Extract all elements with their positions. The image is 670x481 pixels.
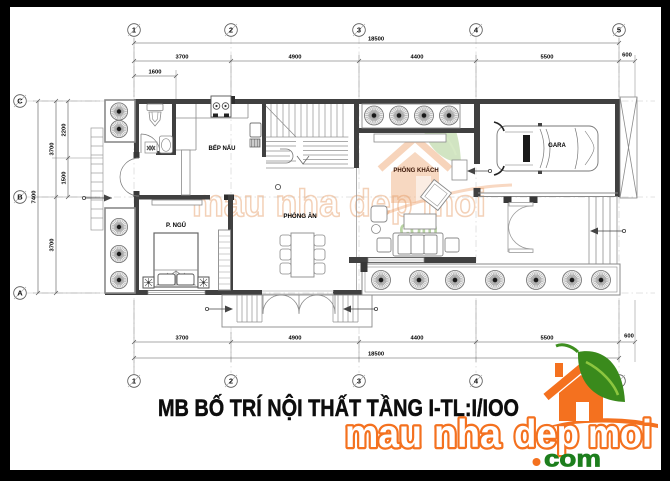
- svg-text:4400: 4400: [411, 55, 424, 61]
- svg-text:4400: 4400: [411, 336, 424, 342]
- svg-text:18500: 18500: [368, 352, 384, 358]
- svg-text:P. NGỦ: P. NGỦ: [166, 222, 186, 229]
- svg-text:3: 3: [357, 26, 361, 35]
- svg-text:2: 2: [229, 26, 233, 35]
- svg-text:BẾP NẤU: BẾP NẤU: [209, 145, 236, 152]
- svg-text:5500: 5500: [541, 55, 554, 61]
- svg-text:PHÒNG ĂN: PHÒNG ĂN: [283, 212, 317, 220]
- svg-text:B: B: [17, 193, 23, 202]
- svg-text:GARA: GARA: [548, 143, 566, 149]
- svg-text:5500: 5500: [541, 336, 554, 342]
- svg-text:3700: 3700: [176, 55, 189, 61]
- svg-text:5: 5: [617, 26, 621, 35]
- svg-text:1600: 1600: [149, 70, 162, 76]
- svg-text:18500: 18500: [368, 37, 384, 43]
- svg-text:2200: 2200: [62, 124, 68, 137]
- svg-text:PHÒNG KHÁCH: PHÒNG KHÁCH: [393, 166, 438, 174]
- svg-text:1: 1: [132, 26, 136, 35]
- svg-text:600: 600: [624, 334, 634, 340]
- svg-text:600: 600: [622, 53, 632, 59]
- svg-text:4900: 4900: [289, 336, 302, 342]
- svg-text:1: 1: [132, 377, 136, 386]
- svg-text:com: com: [544, 446, 601, 472]
- svg-text:3700: 3700: [176, 336, 189, 342]
- svg-text:4900: 4900: [289, 55, 302, 61]
- svg-text:7400: 7400: [32, 191, 38, 204]
- svg-text:A: A: [17, 289, 23, 298]
- svg-text:mau: mau: [345, 413, 422, 456]
- svg-text:3700: 3700: [50, 239, 56, 252]
- svg-text:3: 3: [357, 377, 361, 386]
- svg-text:C: C: [17, 97, 23, 106]
- svg-text:1500: 1500: [62, 172, 68, 185]
- svg-text:3700: 3700: [50, 143, 56, 156]
- svg-text:2: 2: [229, 377, 233, 386]
- svg-text:nha: nha: [434, 413, 501, 456]
